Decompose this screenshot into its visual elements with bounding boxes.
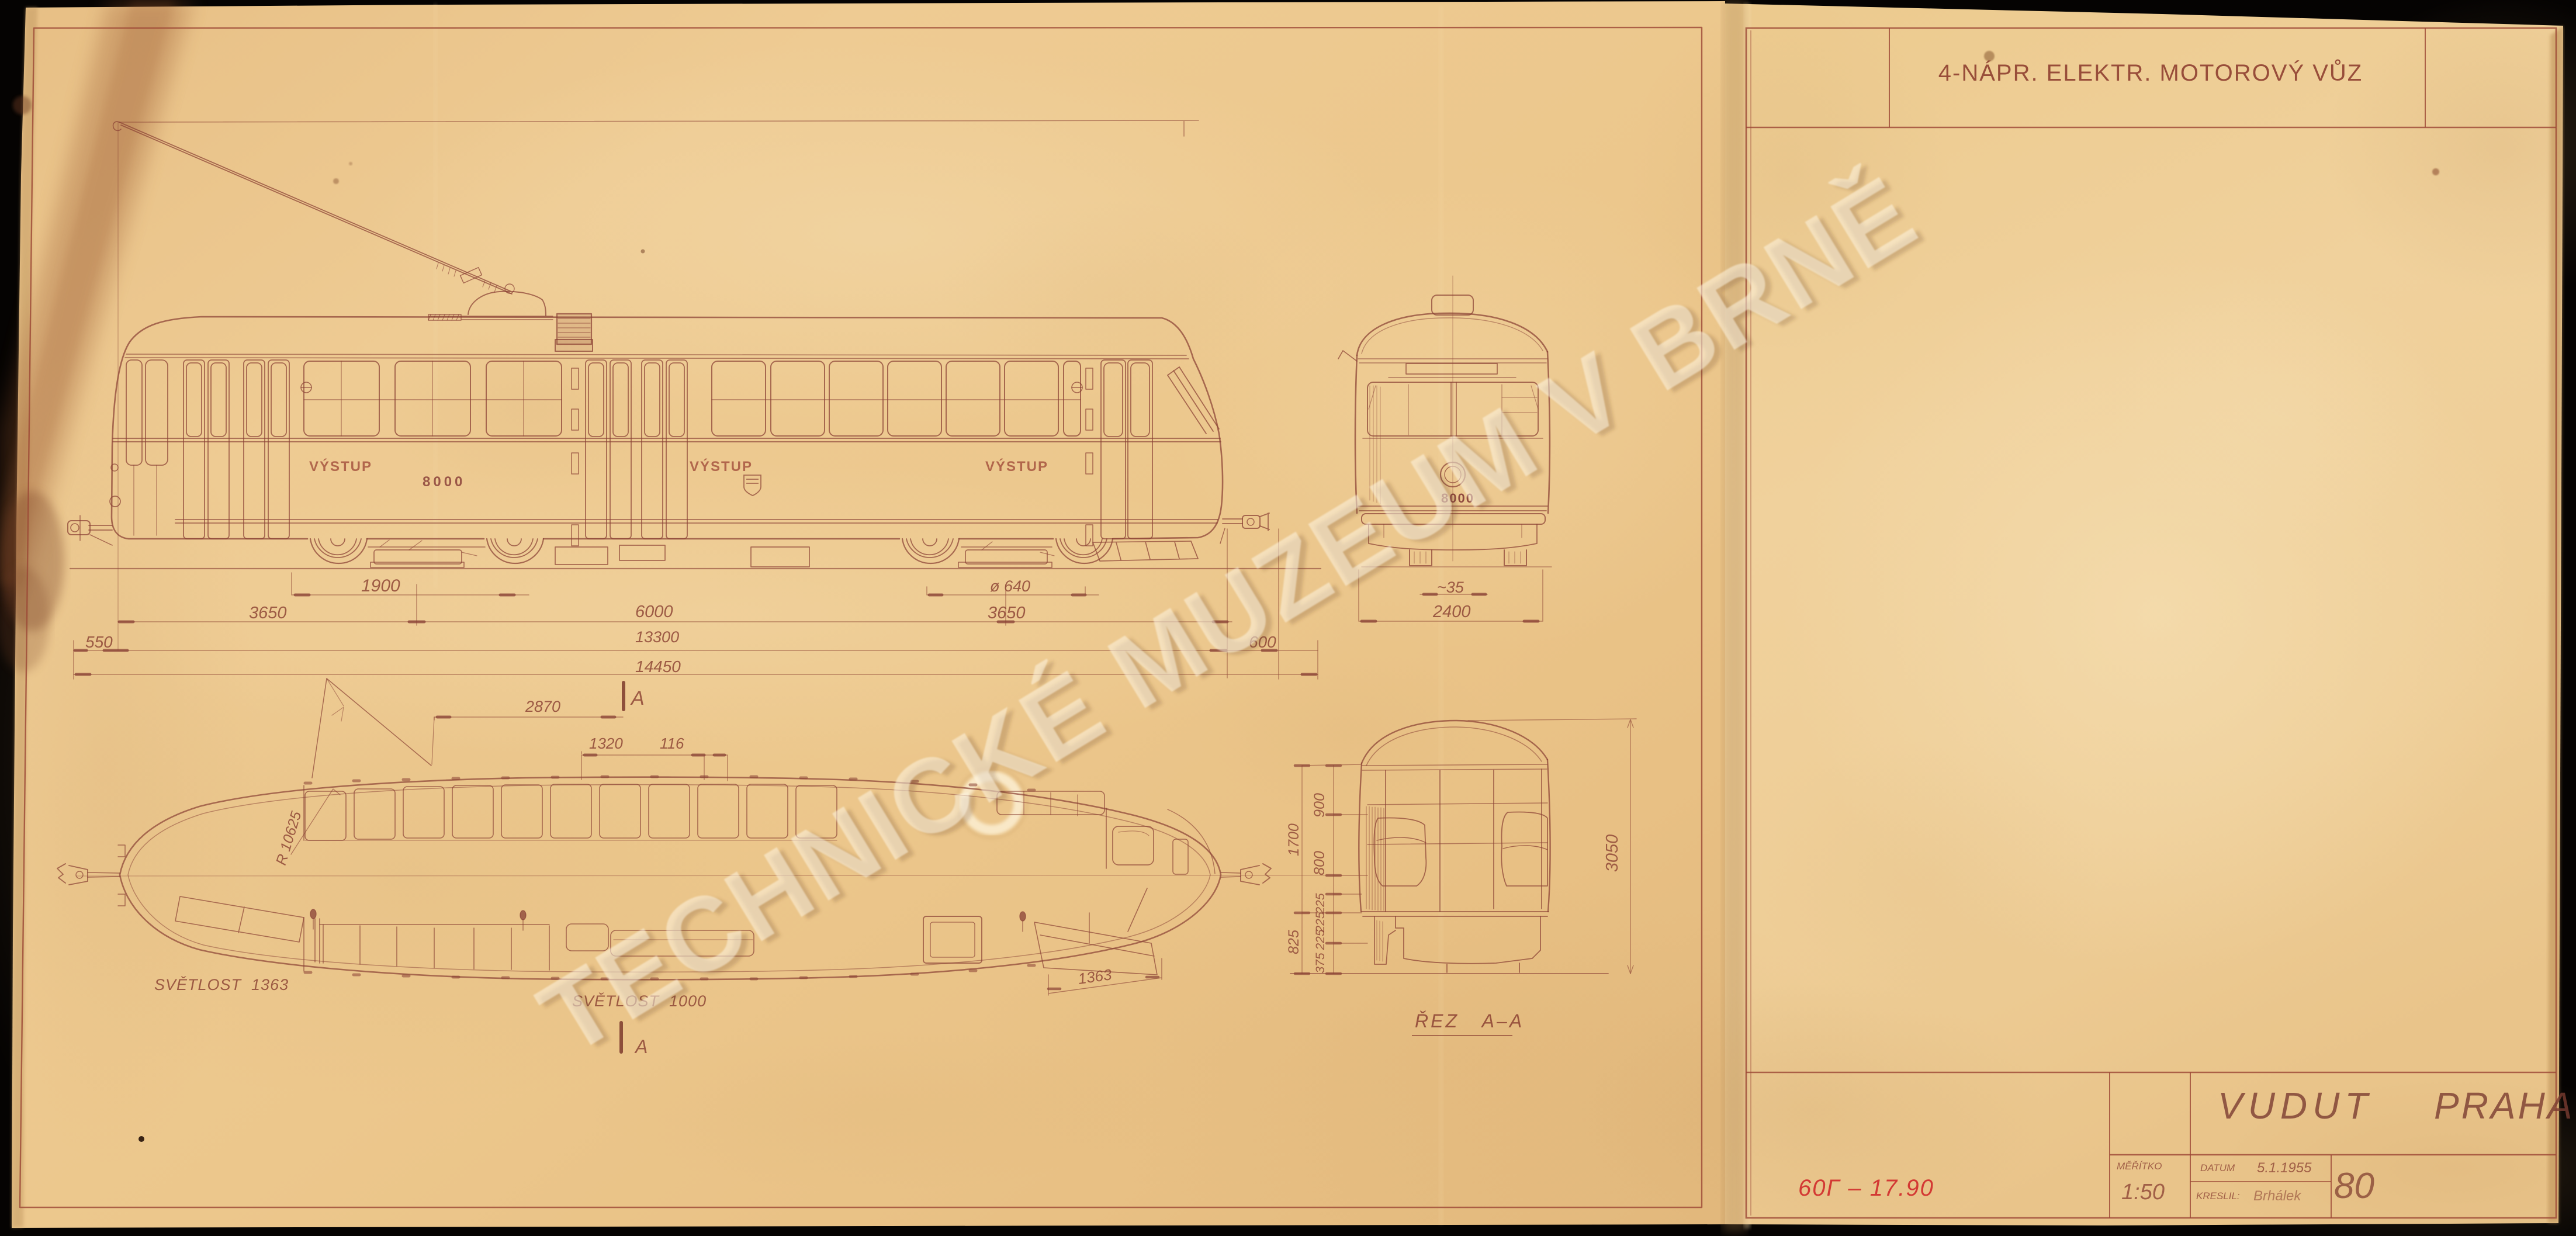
svg-text:3050: 3050 [1603,835,1622,873]
svg-text:13300: 13300 [635,628,679,646]
svg-text:60Г – 17.90: 60Г – 17.90 [1798,1175,1934,1201]
svg-text:DATUM: DATUM [2200,1162,2235,1173]
svg-text:900: 900 [1311,793,1328,818]
svg-text:14450: 14450 [635,657,681,676]
svg-text:1:50: 1:50 [2121,1180,2165,1204]
svg-text:KRESLIL:: KRESLIL: [2196,1190,2240,1202]
svg-text:1320: 1320 [589,735,623,752]
svg-text:2400: 2400 [1432,603,1471,621]
svg-text:VUDUT: VUDUT [2218,1085,2373,1127]
svg-text:MĚŘÍTKO: MĚŘÍTKO [2117,1161,2162,1172]
svg-text:VÝSTUP: VÝSTUP [985,458,1048,475]
svg-text:VÝSTUP: VÝSTUP [309,458,372,475]
svg-text:2870: 2870 [525,698,560,715]
svg-text:1900: 1900 [361,576,400,596]
svg-text:ŘEZ A–A: ŘEZ A–A [1415,1010,1524,1031]
svg-text:225: 225 [1314,929,1327,950]
svg-text:VÝSTUP: VÝSTUP [690,458,753,475]
svg-text:225: 225 [1314,893,1327,914]
svg-text:Brhálek: Brhálek [2253,1188,2302,1204]
svg-text:6000: 6000 [635,603,673,621]
svg-text:375: 375 [1314,953,1327,973]
svg-text:116: 116 [660,735,684,752]
svg-text:PRAHA: PRAHA [2434,1085,2575,1127]
svg-text:SVĚTLOST 1363: SVĚTLOST 1363 [154,975,289,993]
svg-text:1700: 1700 [1286,823,1302,856]
svg-text:80: 80 [2334,1166,2374,1206]
svg-text:~35: ~35 [1437,579,1464,596]
svg-text:4-NÁPR. ELEKTR. MOTOROVÝ VŮZ: 4-NÁPR. ELEKTR. MOTOROVÝ VŮZ [1938,58,2363,86]
svg-text:550: 550 [85,633,113,651]
svg-text:A: A [630,687,645,709]
svg-text:ø 640: ø 640 [990,577,1030,595]
svg-text:5.1.1955: 5.1.1955 [2257,1160,2312,1176]
svg-text:800: 800 [1311,851,1328,875]
svg-text:8000: 8000 [423,474,465,490]
svg-text:825: 825 [1286,930,1302,954]
svg-text:3650: 3650 [249,604,287,622]
svg-text:3650: 3650 [988,604,1026,622]
